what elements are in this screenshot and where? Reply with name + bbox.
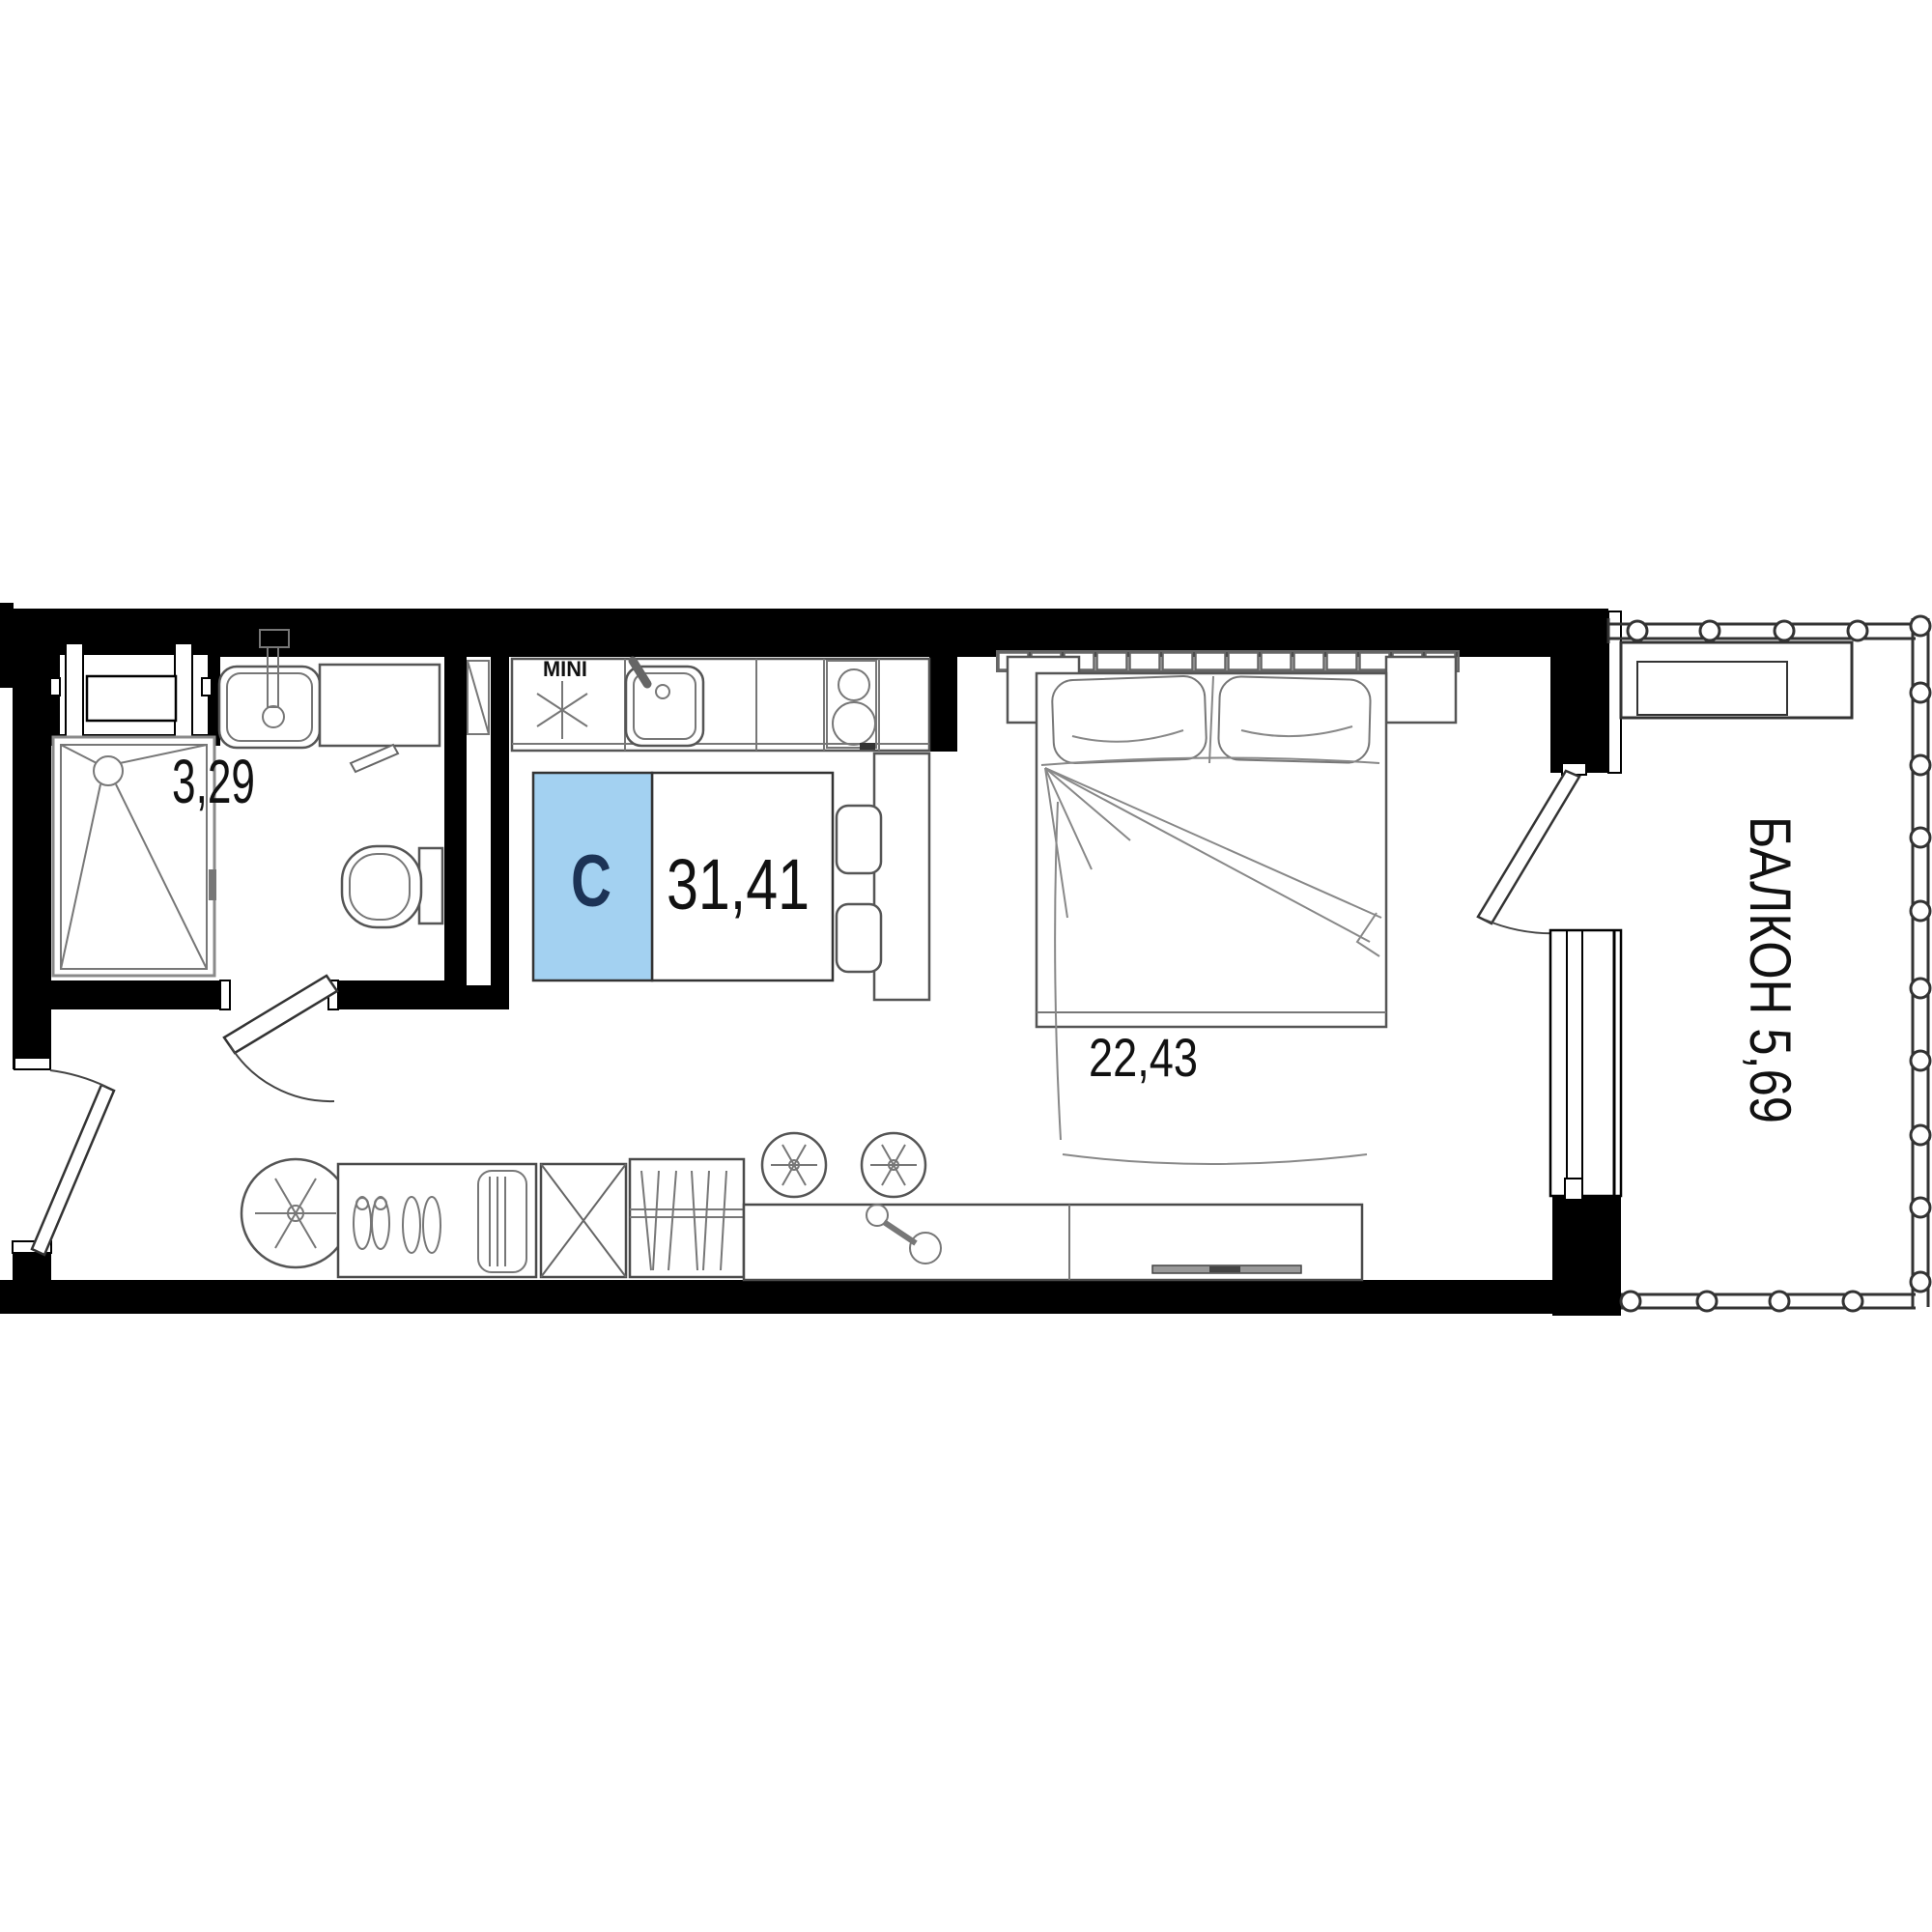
shower-door-handle	[209, 869, 216, 900]
vent-shaft	[467, 657, 491, 985]
chair	[837, 806, 881, 873]
entrance-door	[13, 1058, 114, 1255]
wall-top-left-stub	[0, 603, 14, 688]
unit-letter-label: C	[571, 840, 611, 923]
mini-fridge-label: MINI	[543, 657, 587, 681]
pouf-icon	[762, 1133, 826, 1197]
wall-bathroom-bottom-left	[50, 980, 220, 1009]
kitchen-sink-icon	[626, 661, 703, 746]
wall-bottom	[0, 1280, 1621, 1314]
bathroom: 3,29	[50, 630, 442, 976]
shoe-cabinet-icon	[338, 1164, 536, 1277]
nightstand-right	[1386, 657, 1456, 723]
wall-bathroom-right-inner	[444, 657, 467, 1009]
wall-kitchen-pier	[929, 609, 957, 752]
balcony: БАЛКОН 5,69	[1608, 616, 1930, 1311]
floor-plan-page: 3,29 MINI	[0, 0, 1932, 1932]
balcony-railing-top	[1608, 618, 1916, 643]
wall-top	[13, 609, 1608, 657]
door-handle-icon	[351, 745, 398, 772]
balcony-area-label: БАЛКОН 5,69	[1738, 816, 1803, 1123]
double-bed-icon	[1037, 673, 1386, 1164]
stool-icon	[241, 1159, 350, 1267]
wall-shaft-outer	[491, 657, 509, 985]
balcony-railing-right	[1911, 616, 1930, 1307]
kitchen-tall-cabinet	[874, 753, 929, 1000]
tv-stand	[1209, 1266, 1240, 1272]
room-area-label: 22,43	[1089, 1027, 1198, 1088]
towel-radiator-icon	[50, 643, 212, 744]
bathroom-counter	[320, 665, 440, 746]
balcony-door-leaf	[1478, 771, 1579, 923]
hallway	[241, 1133, 1362, 1280]
bathroom-door	[220, 976, 338, 1101]
wall-left	[13, 609, 51, 1069]
window-frame-strip	[1608, 611, 1621, 773]
wardrobe-box-icon	[541, 1164, 626, 1277]
dining-table: C 31,41	[533, 773, 881, 980]
wall-balcony-pier	[1550, 657, 1608, 773]
balcony-bench	[1621, 642, 1852, 718]
wall-bottom-right-block	[1552, 1196, 1621, 1316]
balcony-railing-bottom	[1621, 1292, 1916, 1311]
chair	[837, 904, 881, 972]
bathroom-area-label: 3,29	[172, 747, 255, 816]
window-icon	[1550, 930, 1621, 1200]
unit-total-area-label: 31,41	[667, 844, 810, 924]
desk-console	[744, 1205, 1362, 1280]
floor-plan: 3,29 MINI	[0, 0, 1932, 1932]
wardrobe-hanging-icon	[630, 1159, 744, 1277]
pouf-icon	[862, 1133, 925, 1197]
sleeping-area: 22,43	[997, 651, 1459, 1164]
toilet-icon	[342, 846, 442, 927]
